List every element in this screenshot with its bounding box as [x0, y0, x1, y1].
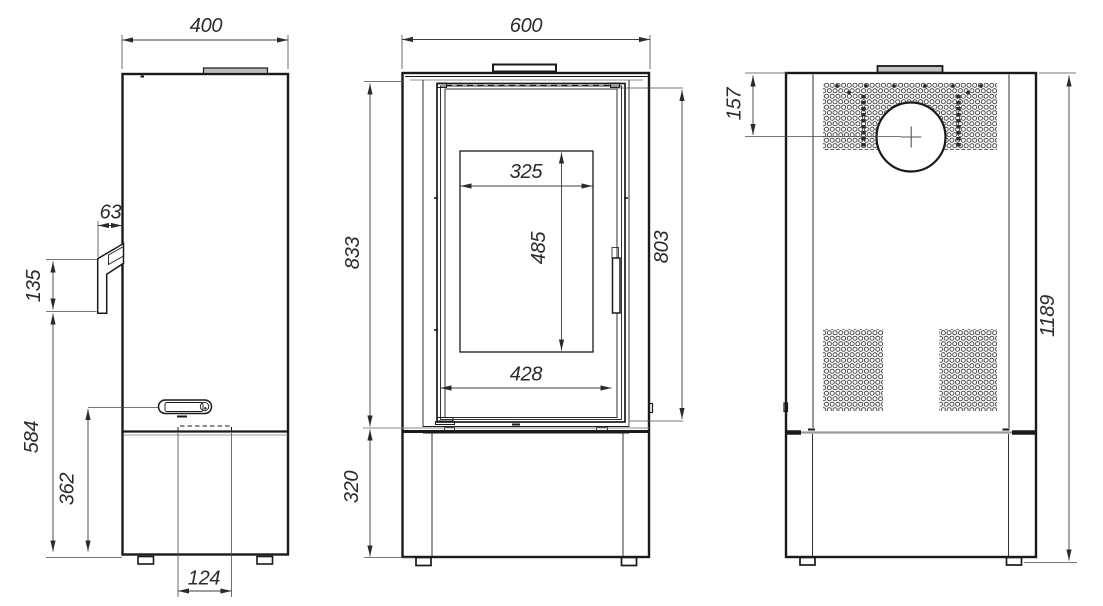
- dim-glass-height-label: 485: [528, 231, 550, 265]
- dim-front-width-label: 600: [510, 15, 543, 37]
- front-foot-left: [416, 558, 431, 566]
- stove-dimension-drawing: 400 63 135 584 362: [0, 0, 1103, 606]
- vent-perforation-lower-left: [823, 329, 883, 411]
- vent-perforation-lower-right: [940, 329, 998, 411]
- dim-lower-height-label: 584: [21, 421, 43, 454]
- dim-handle-depth-label: 63: [100, 202, 122, 224]
- dim-handle-height-label: 135: [23, 269, 45, 303]
- dim-door-width-label: 428: [510, 364, 543, 386]
- technical-drawing-page: 400 63 135 584 362: [0, 0, 1103, 606]
- dim-side-width-label: 400: [190, 15, 223, 37]
- back-view: 157 1189: [724, 66, 1078, 565]
- dimension-upper-height: 833: [342, 82, 404, 427]
- front-top-cap: [493, 65, 556, 72]
- front-view: 600 833 320 803 325 485: [341, 15, 683, 566]
- side-view: 400 63 135 584 362: [21, 15, 288, 597]
- ash-handle-knob-dot: [204, 407, 206, 409]
- front-body: [403, 73, 650, 557]
- side-damper-lever: [649, 404, 653, 413]
- dim-door-height-label: 803: [651, 231, 673, 264]
- back-foot-right: [1007, 558, 1022, 566]
- dimension-handle-height: 135: [23, 260, 97, 312]
- side-body: [123, 74, 289, 555]
- dim-upper-height-label: 833: [342, 237, 364, 270]
- dim-flue-offset-label: 157: [724, 87, 746, 121]
- side-foot-right: [257, 557, 273, 565]
- side-top-plate: [204, 68, 268, 74]
- dim-ash-handle-height-label: 362: [57, 473, 79, 506]
- back-foot-left: [800, 558, 815, 566]
- back-top-cap: [878, 66, 943, 73]
- side-top-tick: [141, 76, 145, 78]
- dimension-lower-height: 584: [21, 314, 122, 558]
- dim-drawer-width-label: 124: [188, 568, 221, 590]
- front-door-handle: [613, 258, 621, 313]
- dimension-side-width: 400: [122, 15, 288, 69]
- side-foot-left: [138, 557, 154, 565]
- front-foot-right: [622, 558, 637, 566]
- dim-total-height-label: 1189: [1037, 295, 1059, 337]
- dim-base-height-label: 320: [341, 471, 363, 504]
- dim-glass-width-label: 325: [510, 161, 544, 183]
- dimension-front-width: 600: [402, 15, 650, 69]
